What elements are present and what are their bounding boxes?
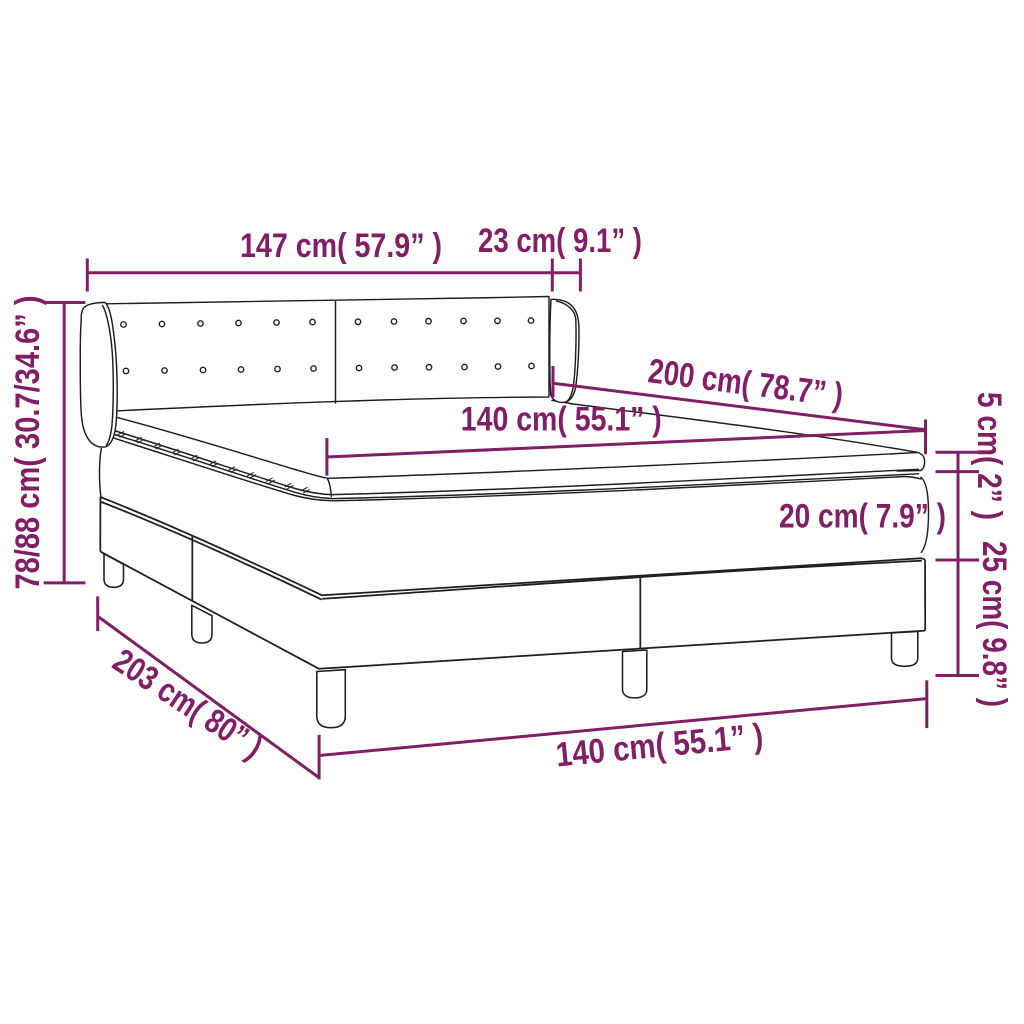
svg-text:147 cm( 57.9” ): 147 cm( 57.9” ) [240, 227, 442, 265]
svg-text:25 cm( 9.8” ): 25 cm( 9.8” ) [975, 541, 1013, 707]
svg-text:5 cm( 2” ): 5 cm( 2” ) [970, 392, 1008, 520]
svg-text:140 cm( 55.1” ): 140 cm( 55.1” ) [461, 401, 662, 439]
svg-text:20 cm( 7.9” ): 20 cm( 7.9” ) [779, 498, 946, 536]
svg-text:78/88 cm( 30.7/34.6” ): 78/88 cm( 30.7/34.6” ) [9, 296, 47, 590]
svg-text:23 cm( 9.1” ): 23 cm( 9.1” ) [478, 222, 642, 260]
